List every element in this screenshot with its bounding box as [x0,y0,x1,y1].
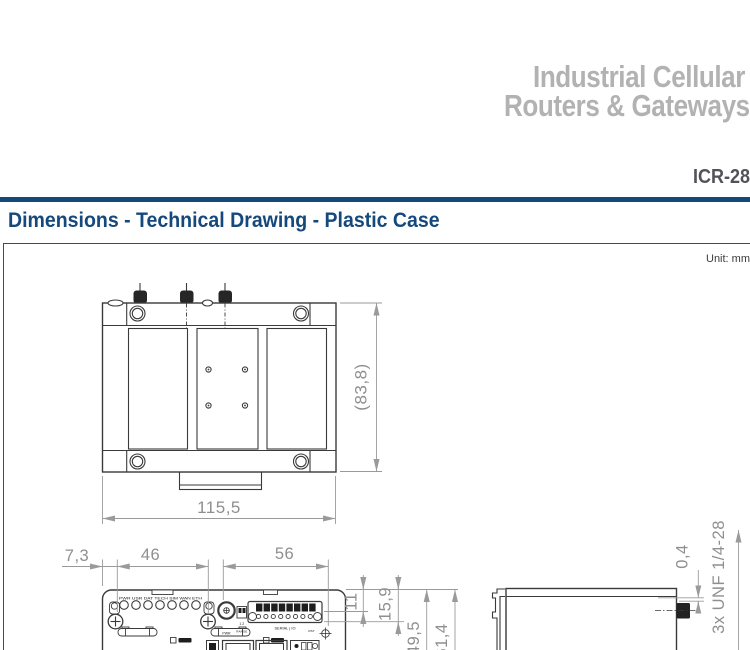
dim-label-11: 11 [343,592,361,610]
dim-label-15-9: 15,9 [377,587,395,621]
dip-label: 1 2 [239,622,244,626]
dim-label-46: 46 [141,546,160,564]
dim-label-depth: (83,8) [352,363,371,410]
dip-switch-icon [237,607,247,619]
dim-label-56: 56 [275,545,294,563]
serial-io-label: SERIAL | IO [275,626,296,631]
top-view [103,283,337,490]
side-view-case-outline [506,589,677,650]
terminal-block-icon [248,602,322,623]
dim-label-0-4: 0,4 [674,544,692,568]
thread-spec-label: 3x UNF 1/4-28 [710,520,728,634]
dim-label-61-4: 61,4 [433,623,451,650]
power-jack-icon [218,602,234,618]
dim-label-49-5: 49,5 [405,621,423,650]
antenna-connector-icon [134,291,233,304]
datasheet-page: Industrial Cellular Routers & Gateways I… [0,0,750,650]
rst-label: RST [308,629,314,633]
ethernet-port-icon [223,641,254,650]
technical-drawing-svg: (83,8) 115,5 [0,0,750,650]
bottom-connectors [207,641,320,650]
din-clip-icon [493,589,506,650]
range-label: RANGE [236,630,247,634]
pwr-label: PWR [222,632,231,636]
dim-label-7-3: 7,3 [65,547,89,565]
dim-label-width: 115,5 [197,498,241,517]
led-row [120,601,201,610]
reset-button-icon [320,628,332,640]
panel-screws [108,602,215,629]
led-labels: PWR USR DAT TECH SIM WAN ETH [119,597,203,601]
